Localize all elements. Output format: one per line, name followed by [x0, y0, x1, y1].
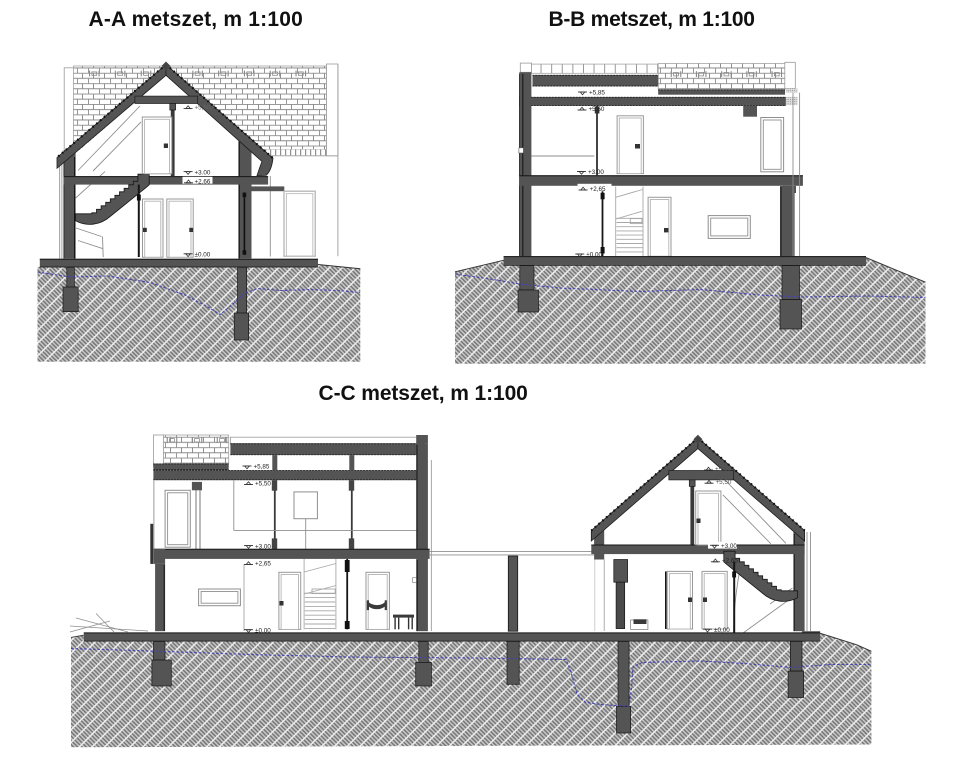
- svg-text:+3,00: +3,00: [721, 543, 737, 550]
- svg-text:+5,85: +5,85: [254, 464, 270, 471]
- svg-text:+5,60: +5,60: [715, 466, 731, 473]
- svg-text:+5,50: +5,50: [716, 479, 732, 486]
- svg-text:+2,65: +2,65: [590, 186, 606, 193]
- svg-text:+5,50: +5,50: [195, 104, 211, 111]
- svg-text:+3.00: +3.00: [255, 543, 271, 550]
- svg-text:±0,00: ±0,00: [714, 627, 730, 634]
- svg-text:+5,85: +5,85: [589, 90, 605, 97]
- svg-text:+3.00: +3.00: [588, 169, 604, 176]
- svg-text:+3.00: +3.00: [195, 169, 211, 176]
- svg-text:+5,50: +5,50: [589, 106, 605, 113]
- svg-text:+2,65: +2,65: [722, 558, 738, 565]
- svg-text:±0.00: ±0.00: [255, 627, 271, 634]
- svg-text:±0.00: ±0.00: [195, 251, 211, 258]
- svg-text:±0.00: ±0.00: [586, 252, 602, 259]
- svg-text:+5,50: +5,50: [255, 480, 271, 487]
- svg-text:+2,65: +2,65: [255, 560, 271, 567]
- svg-text:+2.66: +2.66: [195, 179, 211, 186]
